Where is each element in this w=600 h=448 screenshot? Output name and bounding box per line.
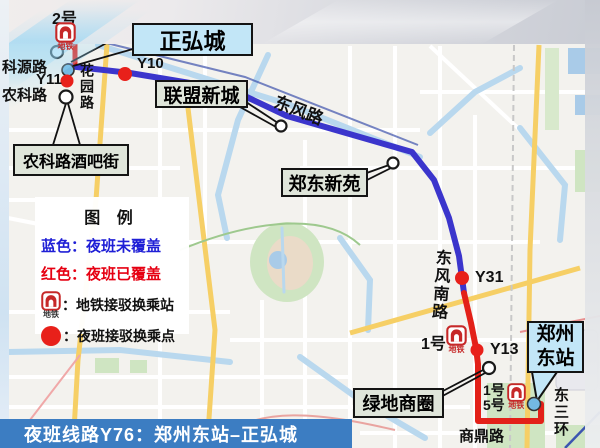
callout-zhengzhou-east-station: 郑州 东站 (527, 321, 584, 373)
legend-item-metro: 地铁 ：地铁接驳换乘站 (41, 291, 182, 319)
stop-label-y10: Y10 (137, 55, 164, 72)
callout-line2: 东站 (536, 347, 574, 371)
metro-caption: 地铁 (43, 311, 59, 319)
road-label-shangdinglu: 商鼎路 (459, 425, 504, 446)
metro-caption: 地铁 (449, 346, 465, 354)
road-label-huayuanlu: 花园路 (77, 63, 97, 111)
legend-night-dot-icon (41, 326, 61, 346)
line1-badge-bottom: 1号 (483, 383, 505, 398)
legend-item-red: 红色：夜班已覆盖 (41, 263, 182, 284)
metro-station-icon-bottom: 地铁 (507, 383, 526, 410)
legend-item-night: ：夜班接驳换乘点 (41, 326, 182, 346)
legend-item-blue: 蓝色：夜班未覆盖 (41, 235, 182, 256)
metro-logo-icon (446, 325, 467, 346)
callout-lvdi-shangquan: 绿地商圈 (353, 388, 444, 418)
stop-dot-zhenghongcheng (62, 64, 74, 76)
slide-right-strip (585, 0, 600, 448)
metro-station-group-zhengzhoueast: 1号 5号 地铁 (483, 383, 526, 413)
legend-panel: 图 例 蓝色：夜班未覆盖 红色：夜班已覆盖 地铁 ：地铁接驳换乘站 ：夜班接驳换… (35, 197, 189, 334)
route-title-bar: 夜班线路Y76：郑州东站–正弘城 (0, 419, 352, 448)
stop-label-y31: Y31 (475, 269, 503, 287)
stop-dot-y10 (118, 67, 132, 81)
callout-zhenghongcheng: 正弘城 (132, 23, 253, 56)
stop-circle-lianmengxincheng (276, 121, 287, 132)
metro-logo-icon (41, 291, 61, 311)
line1-badge-mid: 1号 (421, 330, 446, 354)
line5-badge-bottom: 5号 (483, 398, 505, 413)
callout-line1: 郑州 (536, 323, 574, 347)
road-label-dongfengnanlu: 东风南路 (425, 248, 454, 321)
metro-logo-icon (55, 22, 76, 43)
stop-label-y13: Y13 (490, 341, 518, 359)
stop-circle-lvdishangquan (483, 362, 495, 374)
legend-title: 图 例 (41, 204, 182, 228)
metro-caption: 地铁 (508, 402, 524, 410)
stop-circle-nongkelu (60, 91, 73, 104)
legend-metro-icon: 地铁 (41, 291, 61, 319)
line-badges: 1号 5号 (483, 383, 505, 413)
stop-dot-zhengzhoueast (528, 398, 541, 411)
road-label-dongsanhuan: 东三环 (550, 387, 571, 438)
slide-map-y76: 2号 地铁 科源路 Y11 农科路 花园路 Y10 东风路 东风南路 Y31 Y… (0, 0, 600, 448)
metro-station-icon-mid: 地铁 (446, 325, 467, 354)
stop-dot-y11 (61, 75, 74, 88)
metro-caption: 地铁 (58, 43, 74, 51)
stop-dot-y13 (471, 344, 484, 357)
callout-zhengdong-xinyuan: 郑东新苑 (281, 168, 368, 197)
slide-top-band (0, 0, 600, 44)
stop-dot-y31 (455, 271, 469, 285)
legend-metro-text: ：地铁接驳换乘站 (62, 295, 174, 315)
metro-station-icon-top: 地铁 (55, 22, 76, 51)
callout-nongkelu-bar-street: 农科路酒吧街 (13, 144, 129, 176)
stop-circle-zhengdongxinyuan (388, 158, 399, 169)
legend-night-text: ：夜班接驳换乘点 (63, 326, 175, 346)
callout-lianmengxincheng: 联盟新城 (155, 80, 248, 108)
metro-logo-icon (507, 383, 526, 402)
stop-label-nongkelu: 农科路 (2, 84, 47, 105)
